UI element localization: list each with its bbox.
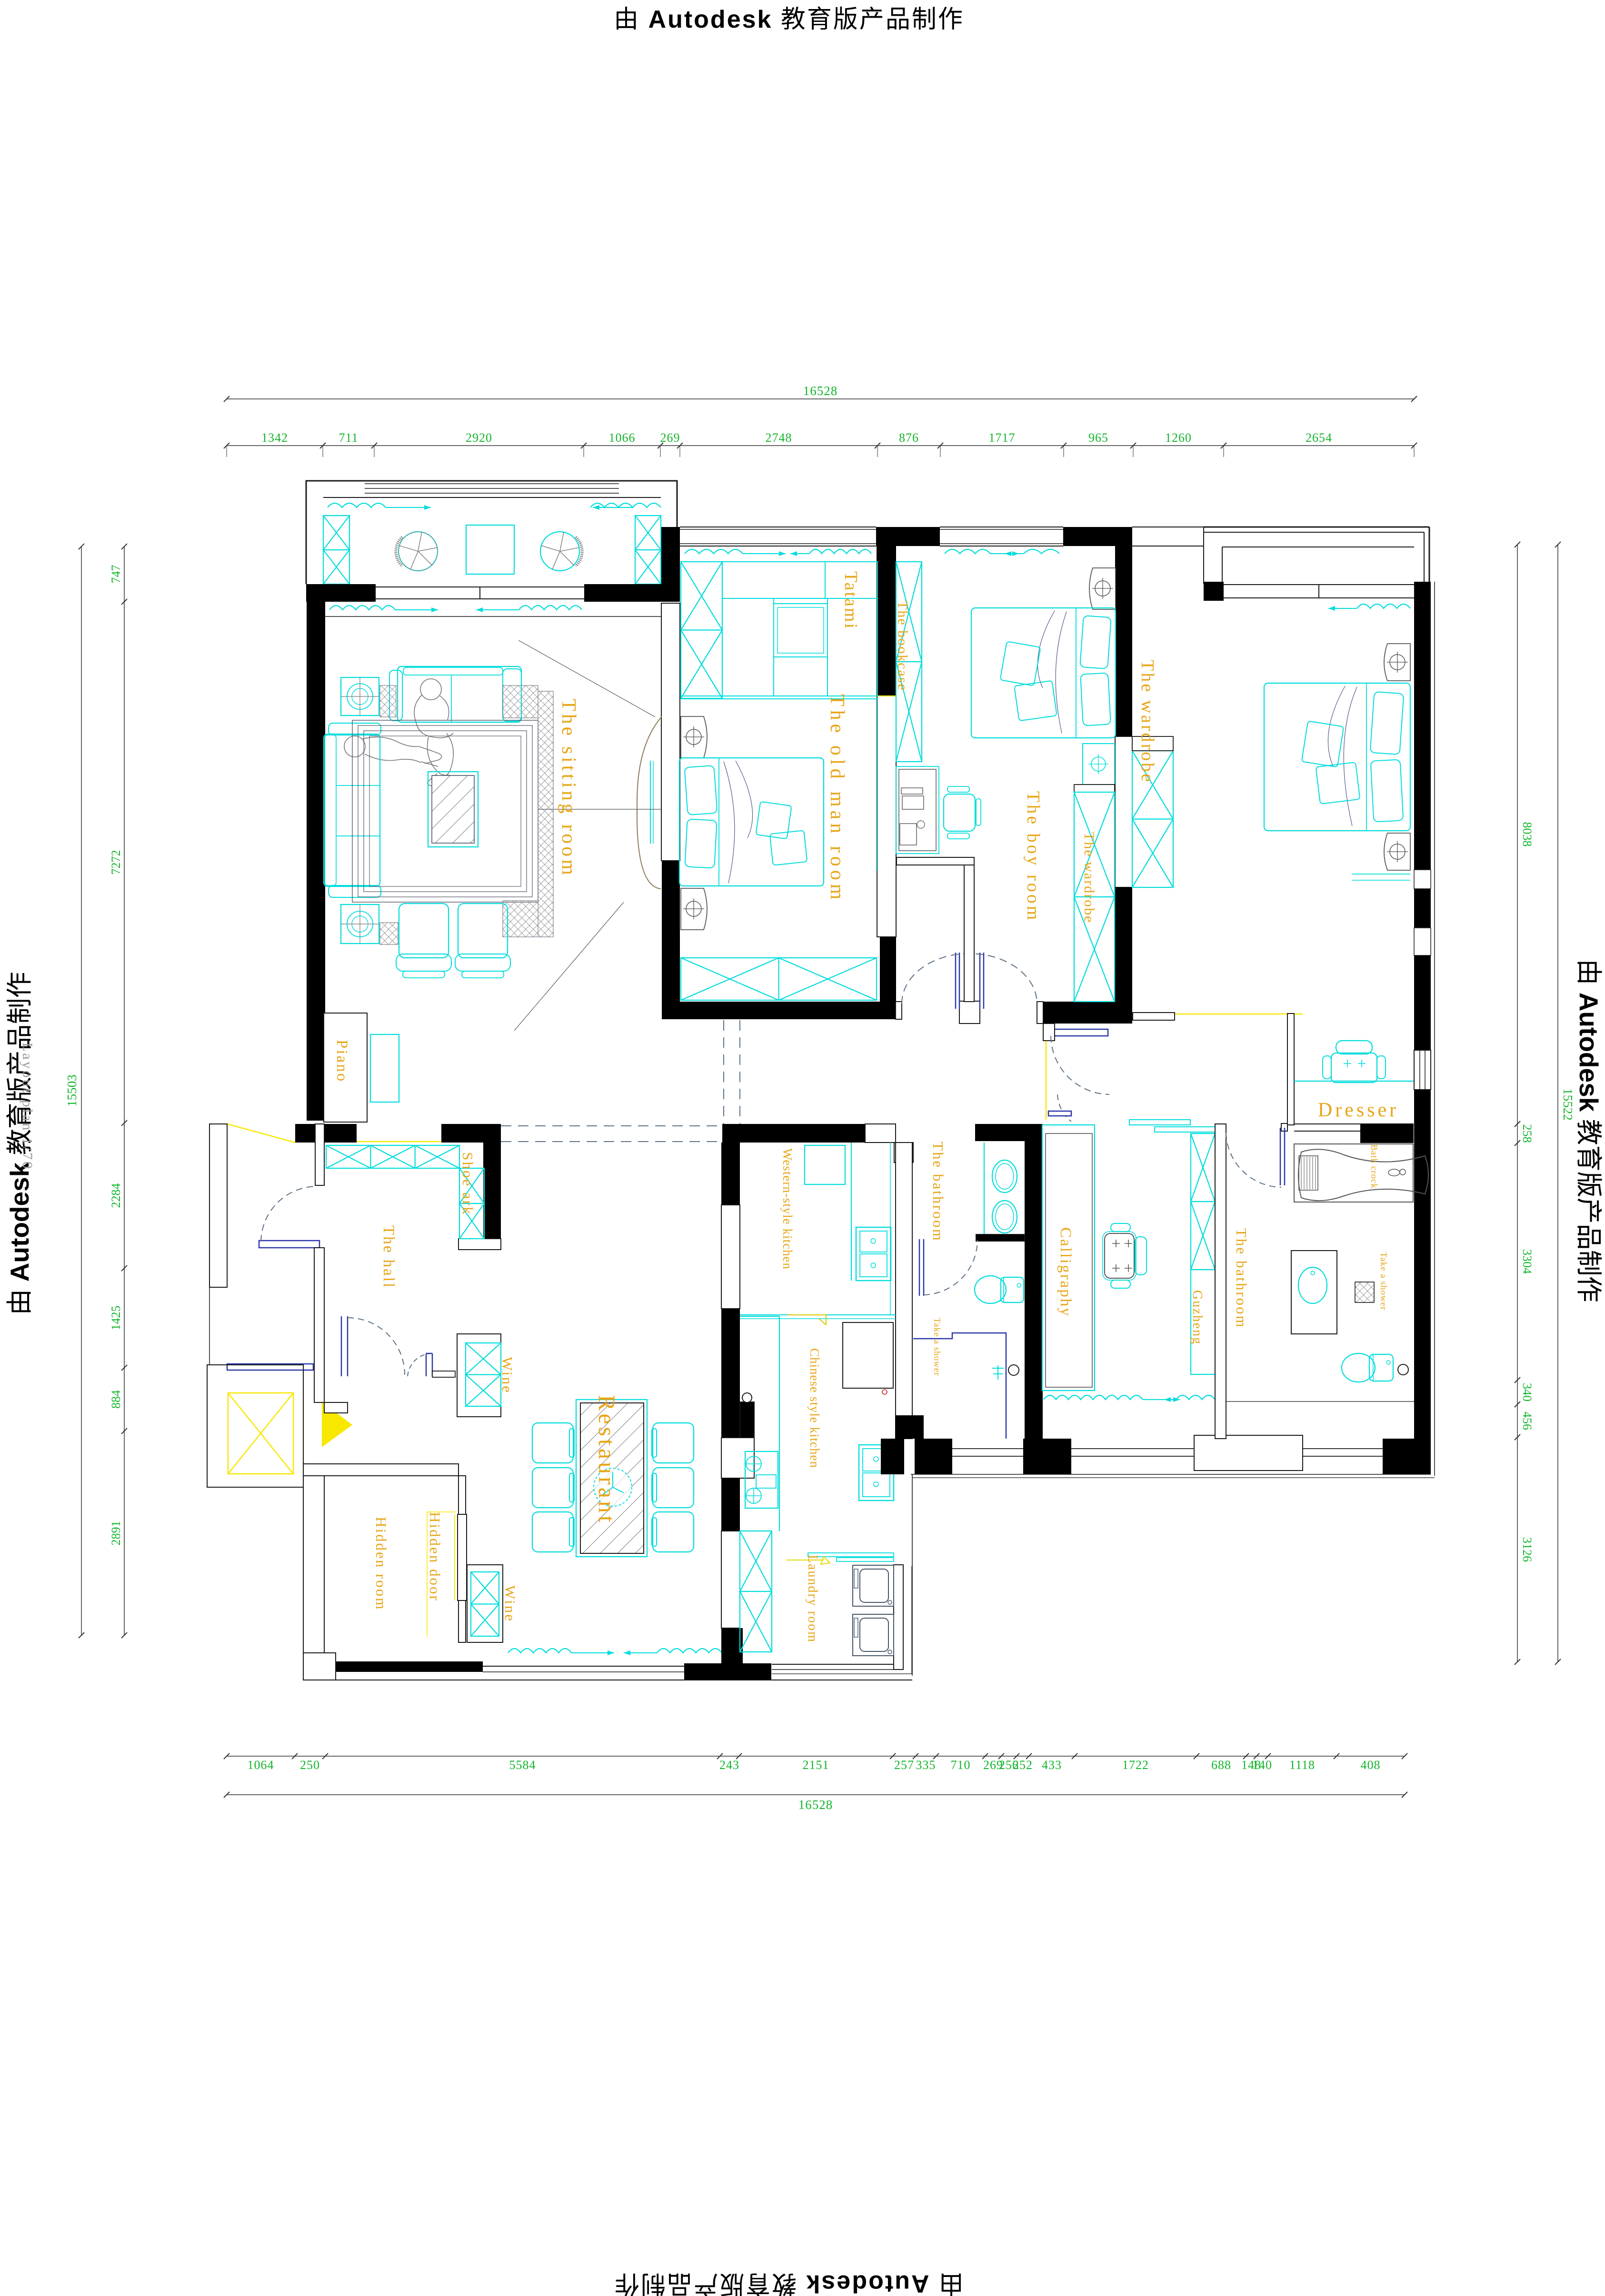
svg-text:408: 408	[1361, 1758, 1381, 1772]
svg-text:The hall: The hall	[380, 1225, 397, 1289]
svg-text:Shoe ark: Shoe ark	[459, 1152, 476, 1215]
svg-text:257: 257	[894, 1758, 914, 1772]
svg-text:269: 269	[660, 431, 680, 445]
svg-text:Layout plan 1/70: Layout plan 1/70	[20, 1043, 35, 1171]
svg-text:The wardrobe: The wardrobe	[1081, 832, 1097, 923]
svg-text:8038: 8038	[1520, 822, 1534, 847]
svg-text:747: 747	[109, 565, 123, 584]
svg-text:1425: 1425	[109, 1306, 123, 1331]
svg-text:The bookcase: The bookcase	[895, 601, 910, 691]
svg-text:Laundry room: Laundry room	[805, 1555, 820, 1643]
svg-text:1722: 1722	[1122, 1758, 1149, 1772]
svg-text:由 Autodesk 教育版产品制作: 由 Autodesk 教育版产品制作	[1574, 959, 1604, 1302]
svg-text:2920: 2920	[466, 431, 492, 445]
svg-text:250: 250	[300, 1758, 320, 1772]
svg-text:965: 965	[1088, 431, 1108, 445]
svg-text:Tatami: Tatami	[841, 571, 861, 630]
svg-text:16528: 16528	[798, 1798, 833, 1812]
svg-text:Hidden room: Hidden room	[373, 1517, 389, 1610]
svg-text:2284: 2284	[109, 1183, 123, 1208]
svg-text:Chinese style kitchen: Chinese style kitchen	[807, 1348, 822, 1468]
svg-text:Calligraphy: Calligraphy	[1057, 1227, 1074, 1317]
svg-text:1064: 1064	[248, 1758, 274, 1772]
svg-text:16528: 16528	[803, 384, 838, 398]
svg-text:The sitting room: The sitting room	[558, 699, 579, 878]
svg-text:340: 340	[1520, 1383, 1534, 1401]
svg-text:688: 688	[1211, 1758, 1231, 1772]
svg-text:Bath crock: Bath crock	[1369, 1144, 1379, 1189]
svg-text:711: 711	[339, 431, 358, 445]
svg-text:Piano: Piano	[333, 1040, 350, 1083]
svg-text:Take a shower: Take a shower	[1378, 1252, 1388, 1310]
svg-text:15522: 15522	[1561, 1088, 1575, 1121]
svg-text:252: 252	[1013, 1758, 1033, 1772]
svg-text:15503: 15503	[65, 1074, 79, 1107]
svg-text:The bathroom: The bathroom	[930, 1142, 947, 1242]
svg-text:884: 884	[109, 1390, 123, 1409]
svg-text:1342: 1342	[261, 431, 288, 445]
svg-text:1260: 1260	[1165, 431, 1192, 445]
svg-text:335: 335	[916, 1758, 936, 1772]
svg-text:710: 710	[951, 1758, 971, 1772]
svg-text:1717: 1717	[989, 431, 1016, 445]
svg-text:Wine: Wine	[502, 1585, 518, 1622]
svg-text:876: 876	[899, 431, 919, 445]
svg-text:433: 433	[1042, 1758, 1062, 1772]
svg-text:456: 456	[1520, 1411, 1534, 1430]
svg-text:2151: 2151	[803, 1758, 829, 1772]
svg-text:7272: 7272	[109, 850, 123, 875]
svg-text:The old man room: The old man room	[826, 694, 848, 903]
svg-text:2654: 2654	[1306, 431, 1332, 445]
svg-text:243: 243	[719, 1758, 739, 1772]
svg-text:Western-style kitchen: Western-style kitchen	[780, 1148, 795, 1270]
svg-text:Hidden door: Hidden door	[427, 1512, 443, 1602]
svg-text:由 Autodesk 教育版产品制作: 由 Autodesk 教育版产品制作	[613, 2270, 964, 2296]
svg-text:The wardrobe: The wardrobe	[1137, 660, 1157, 784]
svg-text:The boy room: The boy room	[1023, 791, 1043, 922]
svg-text:1118: 1118	[1289, 1758, 1315, 1772]
svg-text:3304: 3304	[1520, 1249, 1534, 1274]
svg-text:Take a shower: Take a shower	[932, 1318, 942, 1376]
svg-text:The bathroom: The bathroom	[1233, 1228, 1250, 1329]
svg-text:258: 258	[1520, 1124, 1534, 1143]
svg-text:1066: 1066	[609, 431, 636, 445]
svg-text:Guzheng: Guzheng	[1190, 1290, 1205, 1345]
svg-text:Wine: Wine	[499, 1357, 516, 1394]
svg-text:2891: 2891	[109, 1521, 123, 1546]
svg-text:2748: 2748	[766, 431, 792, 445]
svg-text:140: 140	[1252, 1758, 1272, 1772]
svg-text:Dresser: Dresser	[1318, 1099, 1399, 1121]
svg-text:由 Autodesk 教育版产品制作: 由 Autodesk 教育版产品制作	[614, 6, 964, 33]
svg-text:Restaurant: Restaurant	[594, 1395, 620, 1525]
svg-text:5584: 5584	[509, 1758, 536, 1772]
svg-text:3126: 3126	[1520, 1537, 1534, 1562]
